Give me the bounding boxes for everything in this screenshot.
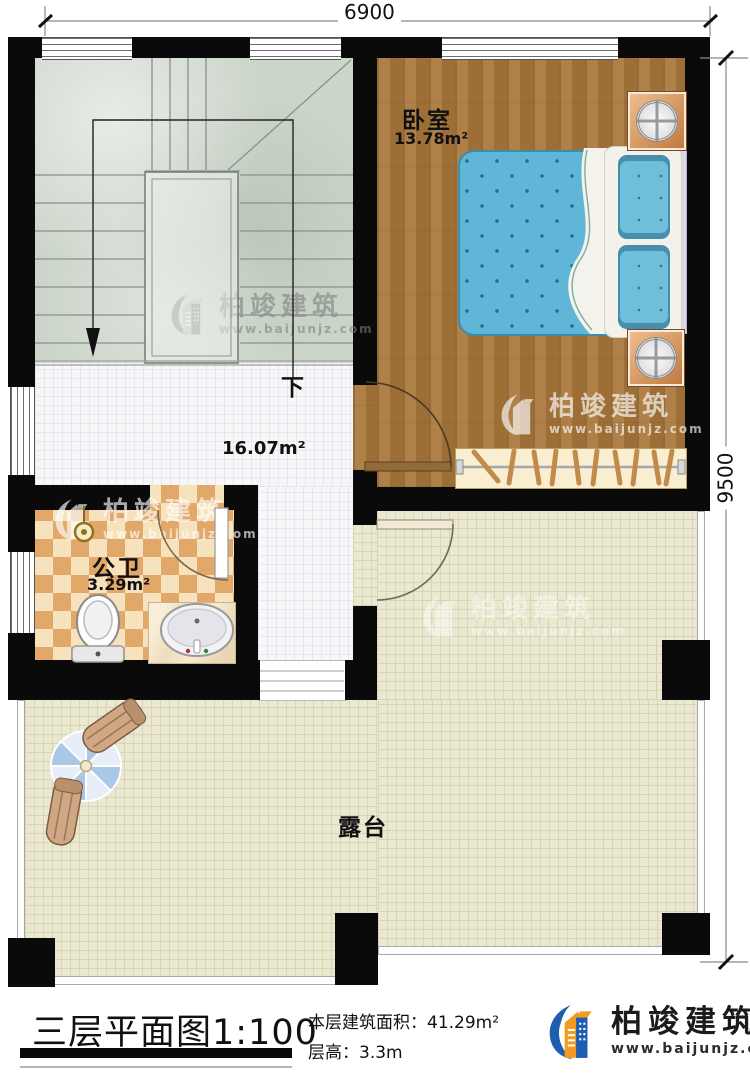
terrace-floor-left [25,700,378,978]
terrace-railing-left [17,700,25,942]
bedroom-area: 13.78m² [394,129,468,148]
terrace-label: 露台 [338,808,388,842]
floor-area-row: 本层建筑面积：41.29m² [308,1008,499,1033]
bedroom-doorway-floor [353,385,377,470]
brand-website: www.baijunjz.com [611,1042,750,1056]
dimension-right-value: 9500 [713,447,737,510]
brand-logo-icon [545,1002,603,1060]
terrace-post-right-mid [662,640,710,700]
dimension-top-value: 6900 [338,0,401,24]
nightstand-lamp-icon [635,337,677,379]
wall-top-segment-3 [341,37,442,58]
floor-height-label: 层高： [308,1043,359,1063]
hall-floor-corridor [258,487,353,664]
wall-bathroom-bottom [8,660,260,700]
brand-name: 柏竣建筑 [611,1007,750,1038]
terrace-railing-right-upper [697,511,705,642]
wardrobe [455,448,687,489]
wall-bathroom-top-left [35,485,150,510]
wall-bathroom-top-right [224,485,258,510]
stairs-down-label: 下 [281,368,306,402]
window-top-stairwell [42,37,132,60]
terrace-railing-bottom-right [378,946,664,955]
terrace-post-bottom-right [662,913,710,955]
terrace-floor-right [378,700,704,948]
terrace-floor-upper [377,511,704,700]
hall-area: 16.07m² [222,438,306,459]
wall-top-segment-2 [132,37,250,58]
wall-right-bedroom [685,37,710,510]
wall-left-mid [8,475,35,552]
terrace-post-bottom-mid [335,913,378,985]
wall-left-upper [8,37,35,387]
bed-pillow-bottom [618,245,670,329]
floor-area-value: 41.29m² [427,1013,499,1033]
bathroom-area: 3.29m² [87,575,150,594]
window-top-bedroom [442,37,618,60]
window-left-bathroom [10,552,35,633]
brand-logo: 柏竣建筑 www.baijunjz.com [545,1002,750,1060]
terrace-step [258,660,347,701]
title-underline-thin [20,1066,292,1068]
terrace-doorway-floor [353,525,377,606]
floor-height-row: 层高：3.3m [308,1038,403,1063]
wall-step-side [345,660,377,700]
stairwell-floor [35,58,353,365]
wall-bathroom-right [234,508,258,665]
nightstand-lamp-icon [636,100,678,142]
bathroom-counter [148,602,236,664]
nightstand-bottom [628,330,684,386]
window-left-hall [10,387,35,475]
window-top-hall [250,37,341,60]
nightstand-top [628,92,686,150]
floor-plan-page: 柏竣建筑 www.baijunjz.com 柏竣建筑 www.baijunjz.… [0,0,750,1079]
terrace-post-bottom-left [8,938,55,987]
bed-pillow-top [618,155,670,239]
title-underline-bar [20,1048,292,1058]
floor-area-label: 本层建筑面积： [308,1013,427,1033]
floor-height-value: 3.3m [359,1043,403,1063]
wall-bedroom-bottom [353,487,710,511]
terrace-railing-right-lower [697,700,705,915]
terrace-railing-bottom-left [25,976,337,985]
wall-stair-bedroom-divider [353,58,377,385]
